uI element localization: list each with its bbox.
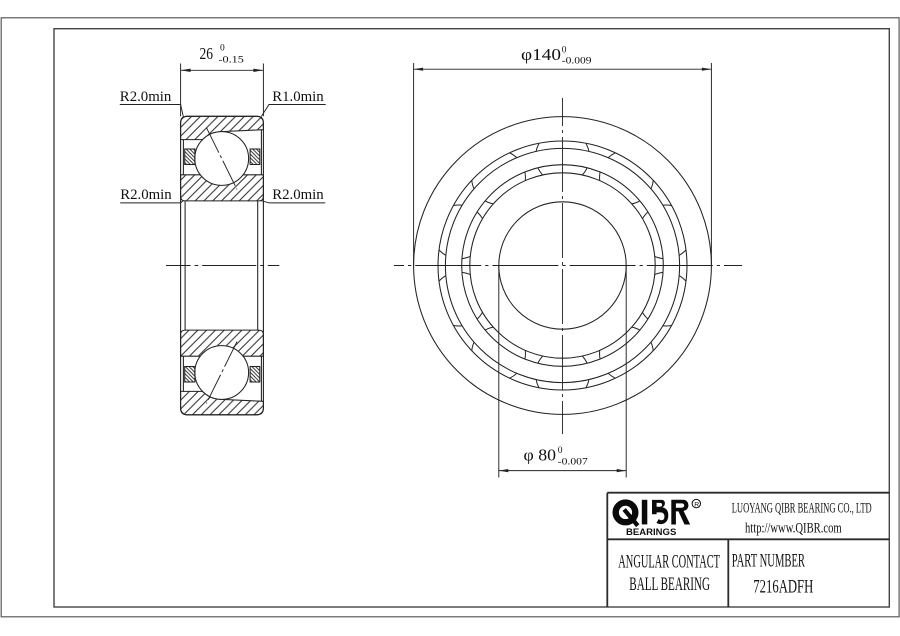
svg-text:-0.007: -0.007 bbox=[558, 458, 588, 468]
svg-text:-0.15: -0.15 bbox=[219, 55, 245, 65]
svg-text:R2.0min: R2.0min bbox=[120, 89, 172, 105]
svg-text:φ140: φ140 bbox=[521, 45, 561, 64]
svg-text:BEARINGS: BEARINGS bbox=[626, 527, 677, 538]
svg-text:R: R bbox=[694, 502, 699, 509]
svg-text:26: 26 bbox=[200, 44, 214, 63]
svg-text:R2.0min: R2.0min bbox=[272, 187, 324, 203]
svg-text:0: 0 bbox=[562, 46, 567, 56]
svg-text:-0.009: -0.009 bbox=[562, 57, 592, 67]
svg-text:0: 0 bbox=[220, 44, 225, 54]
svg-text:PART NUMBER: PART NUMBER bbox=[732, 551, 805, 572]
svg-text:BALL BEARING: BALL BEARING bbox=[629, 574, 710, 595]
svg-text:7216ADFH: 7216ADFH bbox=[753, 576, 813, 597]
svg-text:φ 80: φ 80 bbox=[524, 446, 557, 465]
svg-text:http://www.QIBR.com: http://www.QIBR.com bbox=[745, 521, 842, 537]
svg-text:0: 0 bbox=[558, 446, 563, 456]
svg-text:ANGULAR CONTACT: ANGULAR CONTACT bbox=[618, 551, 720, 572]
svg-text:R2.0min: R2.0min bbox=[120, 187, 172, 203]
svg-text:R1.0min: R1.0min bbox=[272, 89, 324, 105]
svg-text:LUOYANG QIBR BEARING CO., LTD: LUOYANG QIBR BEARING CO., LTD bbox=[732, 501, 872, 517]
